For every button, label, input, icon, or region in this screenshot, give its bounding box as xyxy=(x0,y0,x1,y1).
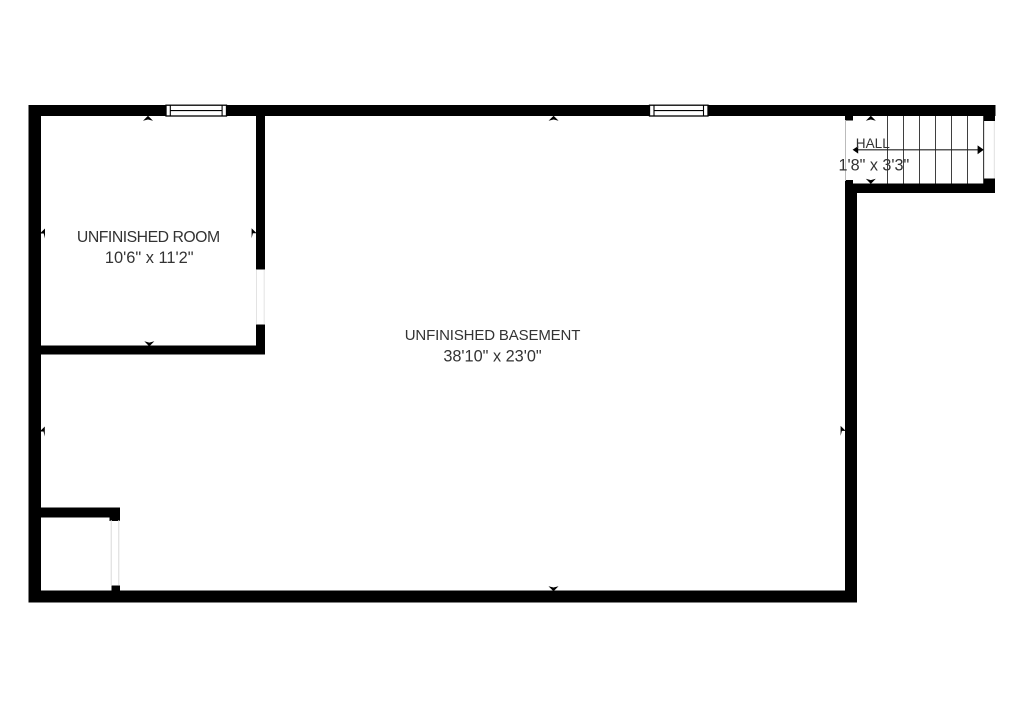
svg-text:1'8" x 3'3": 1'8" x 3'3" xyxy=(839,156,910,174)
svg-text:HALL: HALL xyxy=(856,136,890,151)
svg-text:UNFINISHED ROOM: UNFINISHED ROOM xyxy=(77,229,220,246)
svg-text:10'6" x 11'2": 10'6" x 11'2" xyxy=(105,249,194,267)
svg-text:UNFINISHED BASEMENT: UNFINISHED BASEMENT xyxy=(405,327,581,344)
svg-text:38'10" x 23'0": 38'10" x 23'0" xyxy=(443,348,542,366)
